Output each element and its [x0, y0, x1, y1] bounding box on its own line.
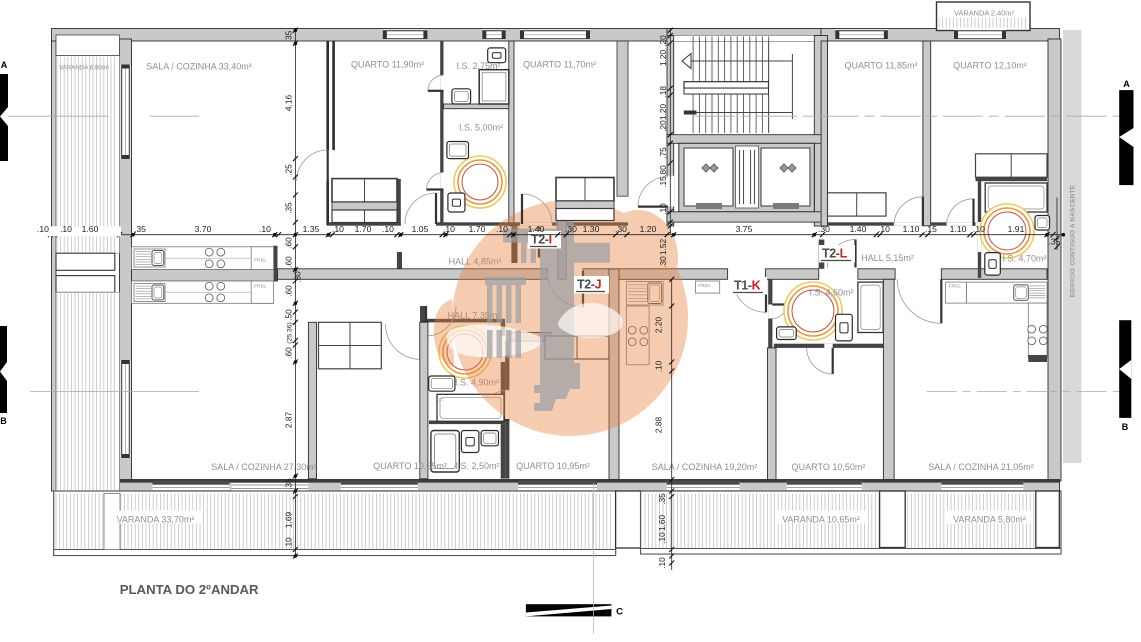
svg-text:EDIFICIO CONTIGUO A NASCENTE: EDIFICIO CONTIGUO A NASCENTE [1070, 184, 1077, 297]
svg-text:.30: .30 [565, 224, 577, 234]
svg-text:T2-L: T2-L [822, 247, 848, 261]
svg-text:A: A [1123, 79, 1130, 89]
svg-text:.35: .35 [657, 493, 667, 505]
svg-text:(25.36): (25.36) [287, 322, 294, 344]
svg-text:I.S. 4,70m²: I.S. 4,70m² [1002, 254, 1046, 264]
svg-text:T2-J: T2-J [577, 278, 602, 292]
svg-text:SALA / COZINHA 27,30m²: SALA / COZINHA 27,30m² [211, 462, 317, 472]
svg-text:1.69: 1.69 [284, 512, 294, 529]
svg-text:QUARTO 10,50m²: QUARTO 10,50m² [792, 462, 866, 472]
svg-text:1.35: 1.35 [303, 224, 320, 234]
svg-text:I.S. 5,00m²: I.S. 5,00m² [459, 123, 503, 133]
svg-text:.35: .35 [284, 202, 294, 214]
svg-text:1.40: 1.40 [850, 224, 867, 234]
svg-text:.10: .10 [382, 224, 394, 234]
svg-text:.15: .15 [925, 224, 937, 234]
svg-text:1.20: 1.20 [658, 104, 668, 121]
svg-text:1.20: 1.20 [658, 50, 668, 67]
svg-text:1.91: 1.91 [1008, 224, 1025, 234]
svg-text:2.87: 2.87 [284, 412, 294, 429]
svg-text:G.2: G.2 [437, 398, 443, 402]
svg-text:VARANDA 2,40m²: VARANDA 2,40m² [954, 9, 1014, 18]
svg-text:HALL 5,15m²: HALL 5,15m² [861, 253, 914, 263]
svg-text:1.70: 1.70 [469, 224, 486, 234]
svg-text:.10: .10 [37, 224, 49, 234]
svg-text:QUARTO 11,90m²: QUARTO 11,90m² [351, 60, 424, 70]
svg-text:SALA / COZINHA 19,20m²: SALA / COZINHA 19,20m² [652, 462, 758, 472]
svg-text:QUARTO 10,95m²: QUARTO 10,95m² [516, 461, 590, 471]
svg-text:SALA / COZINHA 21,05m²: SALA / COZINHA 21,05m² [928, 462, 1034, 472]
svg-text:.80: .80 [658, 165, 668, 177]
svg-text:.60: .60 [284, 285, 294, 297]
svg-text:1.52: 1.52 [658, 239, 668, 256]
svg-text:1.60: 1.60 [657, 515, 667, 532]
svg-text:QUARTO 11,70m²: QUARTO 11,70m² [523, 60, 596, 70]
svg-text:.30: .30 [615, 224, 627, 234]
svg-text:SALA / COZINHA 33,40m²: SALA / COZINHA 33,40m² [146, 62, 252, 72]
svg-text:VARANDA 10,65m²: VARANDA 10,65m² [782, 515, 860, 525]
svg-text:.10: .10 [657, 557, 667, 569]
svg-text:1.10: 1.10 [903, 224, 920, 234]
svg-text:QUARTO 12,10m²: QUARTO 12,10m² [953, 61, 1027, 71]
svg-text:.60: .60 [284, 347, 294, 359]
svg-text:1.60: 1.60 [82, 224, 99, 234]
svg-text:.10: .10 [878, 224, 890, 234]
svg-text:.10: .10 [332, 224, 344, 234]
svg-text:FRIG.: FRIG. [949, 284, 962, 290]
svg-text:QUARTO 10,35m²: QUARTO 10,35m² [373, 461, 447, 471]
svg-text:2.20: 2.20 [654, 317, 664, 334]
svg-text:B: B [1122, 422, 1129, 432]
svg-text:.30: .30 [818, 224, 830, 234]
svg-text:1.05: 1.05 [412, 224, 429, 234]
svg-text:.10: .10 [284, 537, 294, 549]
svg-text:1.10: 1.10 [950, 224, 967, 234]
svg-text:.75: .75 [658, 147, 668, 159]
svg-text:1.30: 1.30 [583, 224, 600, 234]
svg-text:.30: .30 [658, 256, 668, 268]
svg-text:4.16: 4.16 [284, 95, 294, 112]
svg-text:.50: .50 [284, 309, 294, 321]
svg-text:B: B [0, 416, 7, 426]
svg-text:.18: .18 [658, 86, 668, 98]
svg-text:.35: .35 [134, 224, 146, 234]
svg-text:1.20: 1.20 [640, 224, 657, 234]
svg-text:I.S. 4,60m²: I.S. 4,60m² [809, 288, 853, 298]
svg-text:.35: .35 [284, 30, 294, 42]
svg-text:.10: .10 [654, 360, 664, 372]
svg-text:.10: .10 [657, 532, 667, 544]
svg-text:.20: .20 [658, 35, 668, 47]
svg-text:3.70: 3.70 [195, 224, 212, 234]
svg-text:PLANTA DO 2ºANDAR: PLANTA DO 2ºANDAR [120, 582, 259, 597]
svg-text:.15: .15 [658, 176, 668, 188]
svg-text:.35: .35 [284, 478, 294, 490]
svg-text:.20: .20 [658, 120, 668, 132]
svg-text:FRIG.: FRIG. [698, 283, 711, 289]
svg-text:FRIG.: FRIG. [254, 258, 267, 264]
svg-text:I.S. 2,50m²: I.S. 2,50m² [455, 461, 499, 471]
svg-text:VARANDA 33,70m²: VARANDA 33,70m² [117, 515, 195, 525]
svg-text:.10: .10 [658, 203, 668, 215]
svg-text:VARANDA 8,80m²: VARANDA 8,80m² [59, 65, 109, 72]
svg-text:.25: .25 [284, 164, 294, 176]
svg-text:C: C [616, 607, 623, 618]
svg-text:T1-K: T1-K [734, 279, 761, 293]
svg-text:1.70: 1.70 [355, 224, 372, 234]
svg-text:1.40: 1.40 [528, 224, 545, 234]
svg-text:2.88: 2.88 [654, 417, 664, 434]
svg-text:.60: .60 [284, 237, 294, 249]
svg-text:.10: .10 [443, 224, 455, 234]
svg-text:.30: .30 [293, 271, 303, 283]
svg-text:.10: .10 [259, 224, 271, 234]
svg-text:VARANDA 5,80m²: VARANDA 5,80m² [953, 515, 1026, 525]
svg-text:.10: .10 [60, 224, 72, 234]
svg-text:A: A [1, 60, 8, 70]
svg-text:3.75: 3.75 [736, 224, 753, 234]
svg-text:.10: .10 [496, 224, 508, 234]
svg-text:.60: .60 [284, 256, 294, 268]
svg-text:QUARTO 11,85m²: QUARTO 11,85m² [844, 61, 917, 71]
svg-text:.10: .10 [973, 224, 985, 234]
svg-text:FRIG.: FRIG. [254, 284, 267, 290]
